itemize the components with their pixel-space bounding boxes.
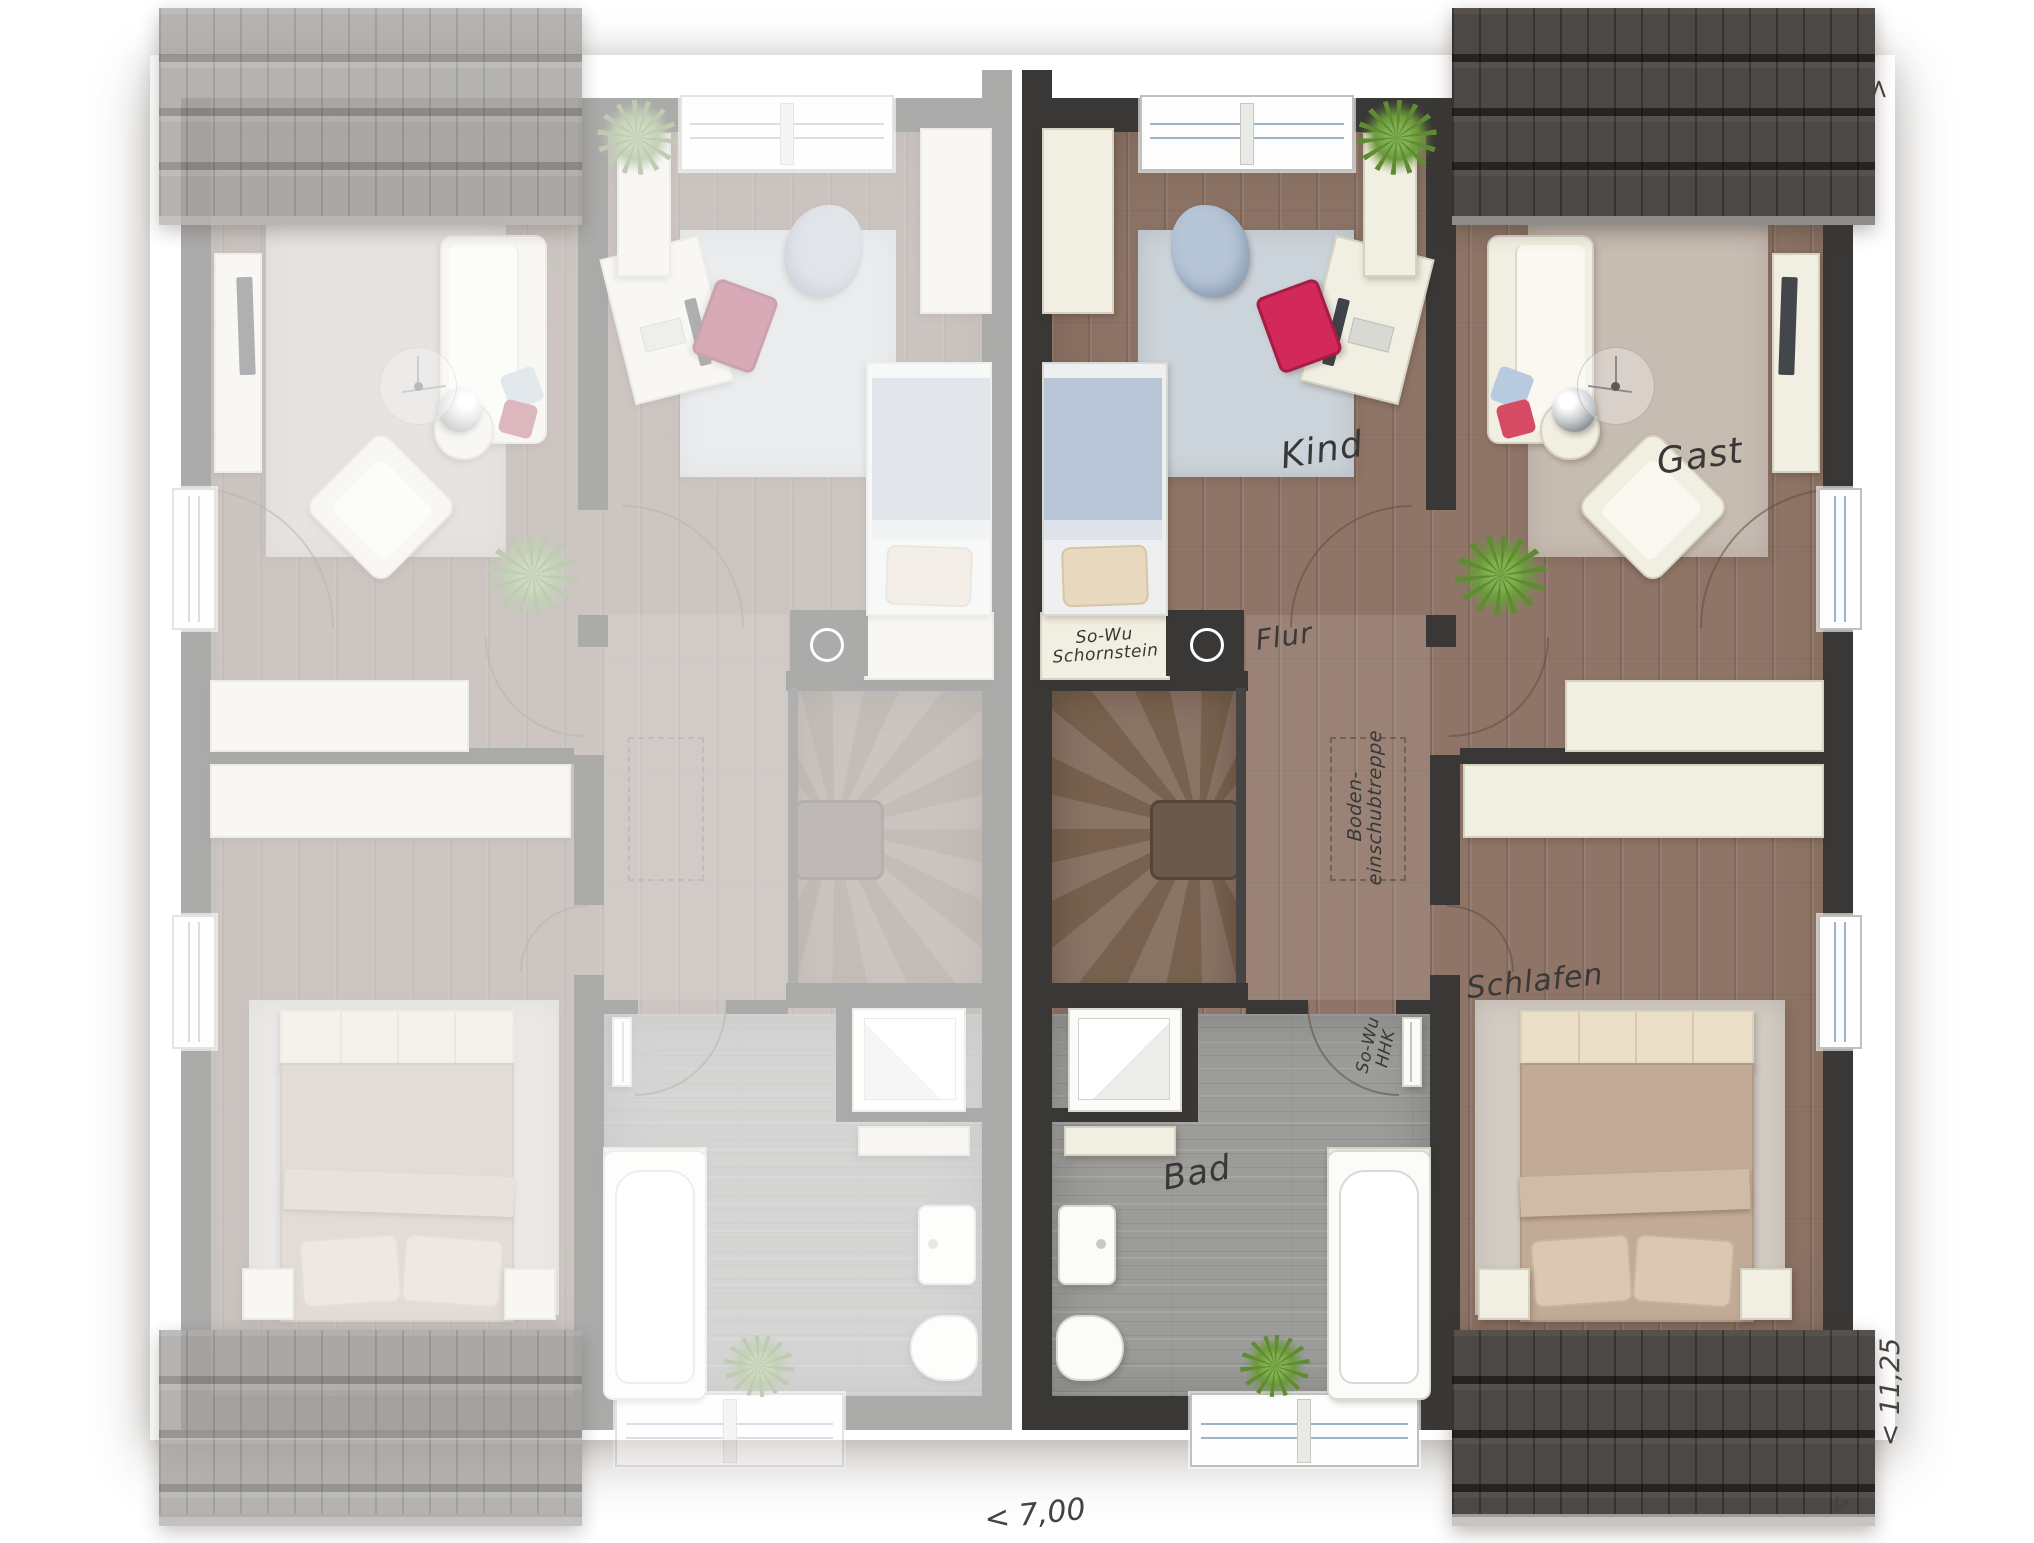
plant-kind-icon	[597, 100, 677, 175]
radiator-hhk	[612, 1017, 632, 1087]
kind-gast-divider-wall	[578, 98, 608, 510]
bed-headboard	[280, 1010, 514, 1069]
floorplan-page: { "rooms": { "kind": "Kind", "gast": "Ga…	[0, 0, 2034, 1526]
nightstand-right	[1740, 1268, 1792, 1320]
window-mullion	[1297, 1399, 1311, 1463]
bad-top-wall-left	[726, 1000, 788, 1014]
pillow	[1061, 545, 1149, 608]
bed-kind	[1042, 362, 1168, 616]
blanket	[872, 378, 990, 520]
chimney-flue-icon	[810, 628, 844, 662]
chimney-flue-icon	[1190, 628, 1224, 662]
tv-icon	[236, 277, 255, 375]
attic-stairs-line2: einschubtreppe	[1366, 729, 1386, 886]
bed-schlafen	[1520, 1063, 1754, 1322]
plant-gast-icon	[487, 535, 579, 615]
bad-schlafen-wall-upper	[574, 755, 604, 905]
nightstand-left	[1478, 1268, 1530, 1320]
unit-right: So-Wu Schornstein	[1012, 70, 1906, 1430]
pillow	[401, 1234, 505, 1309]
bathtub-basin	[615, 1170, 695, 1384]
bathtub-basin	[1339, 1170, 1419, 1384]
sheet-fold	[872, 520, 990, 540]
window-gast-side	[1818, 488, 1862, 630]
attic-stairs-label: Boden- einschubtreppe	[1296, 712, 1436, 902]
sheet-fold	[1044, 520, 1162, 540]
pillow	[885, 545, 973, 608]
cupboard-gast	[1565, 680, 1824, 752]
bathtub	[1327, 1150, 1431, 1400]
clock-hand	[1588, 385, 1632, 393]
attic-stairs-line1: Boden-	[1346, 770, 1366, 842]
window-schlafen-side	[172, 915, 216, 1049]
wardrobe-kind	[1042, 128, 1114, 314]
window-kind	[1140, 95, 1354, 171]
window-schlafen-side	[1818, 915, 1862, 1049]
faucet-icon	[928, 1239, 938, 1249]
sink	[918, 1205, 976, 1285]
stair-stringer-wall	[788, 688, 798, 1008]
toilet	[1056, 1315, 1124, 1381]
bed-headboard	[1520, 1010, 1754, 1069]
clock-hand	[402, 385, 446, 393]
blanket-fold	[283, 1169, 514, 1217]
stair-bottom-wall	[786, 983, 982, 1008]
wardrobe-kind	[920, 128, 992, 314]
floor-clock	[379, 347, 457, 425]
toilet	[910, 1315, 978, 1381]
nightstand-left	[504, 1268, 556, 1320]
tv-icon	[1778, 277, 1797, 375]
bath-shelf	[1064, 1126, 1176, 1156]
bad-top-wall-left	[1246, 1000, 1308, 1014]
roof-bottom-right	[1452, 1330, 1875, 1526]
armchair-seat	[330, 458, 435, 563]
window-mullion	[1240, 103, 1254, 165]
dimension-width: < 7,00	[948, 1485, 1121, 1543]
chimney-label-line2: Schornstein	[1052, 642, 1159, 667]
stair-bottom-wall	[1052, 983, 1248, 1008]
shower	[1068, 1008, 1182, 1112]
chimney-label-plate: So-Wu Schornstein	[1040, 612, 1170, 680]
plant-kind-icon	[1357, 100, 1437, 175]
faucet-icon	[1096, 1239, 1106, 1249]
divider-wall-stub	[1426, 615, 1456, 647]
sink	[1058, 1205, 1116, 1285]
window-bad	[615, 1393, 844, 1467]
blanket	[1044, 378, 1162, 520]
stair-newel-post	[794, 800, 884, 880]
pillow	[299, 1234, 403, 1309]
window-mullion	[723, 1399, 737, 1463]
divider-wall-stub	[578, 615, 608, 647]
nightstand-right	[242, 1268, 294, 1320]
stair-newel-post	[1150, 800, 1240, 880]
plant-gast-icon	[1455, 535, 1547, 615]
outer-side-wall	[181, 98, 211, 1428]
window-mullion	[780, 103, 794, 165]
shower	[852, 1008, 966, 1112]
unit-left-faded: So-Wu Schornstein	[128, 70, 1022, 1430]
cupboard-schlafen	[1463, 764, 1824, 838]
cupboard-schlafen	[210, 764, 571, 838]
roof-bottom-left	[159, 1330, 582, 1526]
attic-hatch-outline	[628, 737, 704, 881]
stair-stringer-wall	[1236, 688, 1246, 1008]
bath-shelf	[858, 1126, 970, 1156]
window-bad	[1190, 1393, 1419, 1467]
floor-clock	[1577, 347, 1655, 425]
bed-kind	[866, 362, 992, 616]
dimension-depth: < 11,25	[1873, 1312, 1907, 1472]
roof-top-left	[159, 8, 582, 225]
bathtub	[603, 1150, 707, 1400]
bed-schlafen	[280, 1063, 514, 1322]
window-kind	[680, 95, 894, 171]
chimney-label-plate: So-Wu Schornstein	[864, 612, 994, 680]
shower-tray	[1078, 1018, 1170, 1100]
dimension-chevron-top: >	[1862, 72, 1896, 106]
clock-hub	[1611, 382, 1620, 391]
pillow	[1632, 1234, 1736, 1309]
hhk-line2: HHK	[1374, 1028, 1399, 1069]
shower-tray	[864, 1018, 956, 1100]
window-gast-side	[172, 488, 216, 630]
blanket-fold	[1519, 1169, 1750, 1217]
plant-bad-icon	[1240, 1335, 1310, 1397]
outer-side-wall	[1823, 98, 1853, 1428]
bad-top-wall-right	[604, 1000, 638, 1014]
clock-hub	[414, 382, 423, 391]
plant-bad-icon	[724, 1335, 794, 1397]
pillow	[1530, 1234, 1634, 1309]
roof-top-right	[1452, 8, 1875, 225]
cupboard-gast	[210, 680, 469, 752]
